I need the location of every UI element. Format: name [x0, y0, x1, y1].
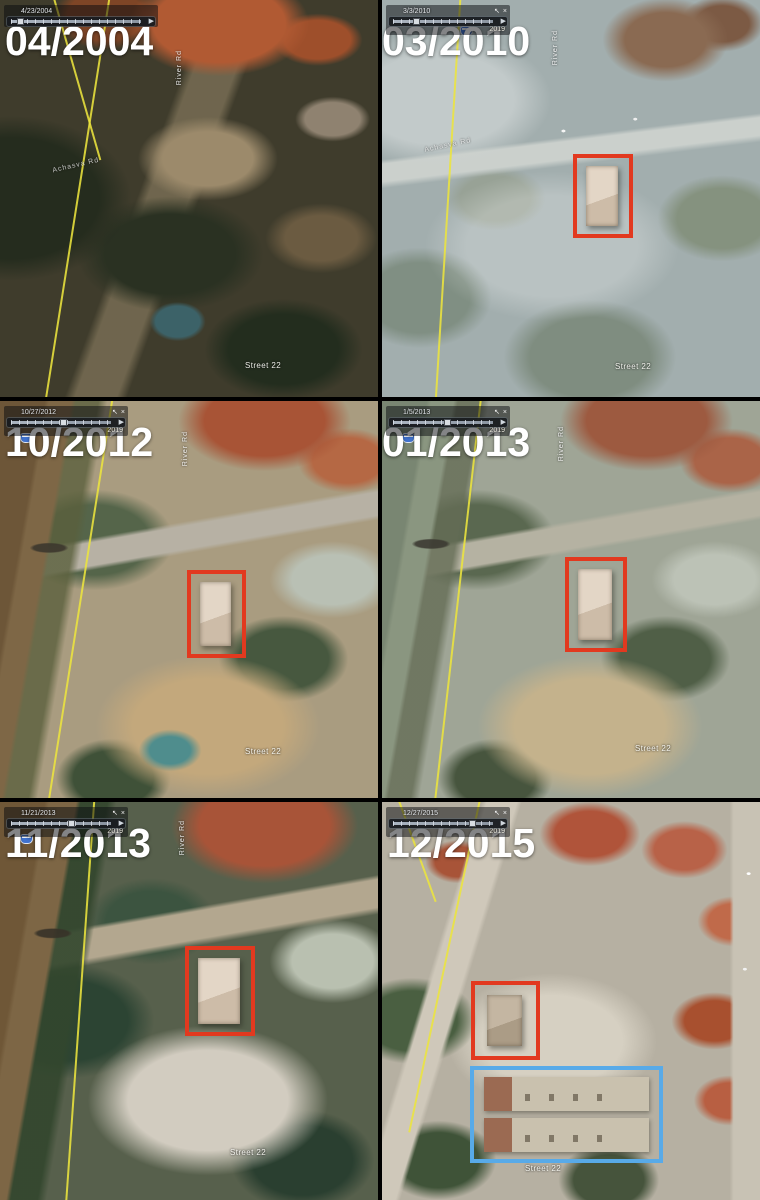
timeline-tools: ↖× [112, 408, 125, 417]
close-icon[interactable]: × [121, 408, 125, 417]
river-road-label: River Rd [552, 30, 559, 65]
highlighted-building [198, 958, 240, 1024]
timeline-current-date: 11/21/2013 [21, 810, 56, 817]
highlight-box-red [471, 981, 540, 1060]
highlighted-building [200, 582, 231, 646]
timeline-track[interactable]: ▶ [7, 819, 125, 828]
historical-imagery-slider[interactable]: 4/23/2004 ↖× ▶ [4, 5, 158, 27]
timeline-tools: ↖× [112, 809, 125, 818]
timeline-handle[interactable] [469, 820, 476, 827]
close-icon[interactable]: × [503, 408, 507, 417]
satellite-panel-2012-10: 10/27/2012 ↖× ▶ 2019 10/2012 River Rd St… [0, 401, 378, 798]
step-forward-icon[interactable]: ▶ [501, 17, 506, 26]
step-forward-icon[interactable]: ▶ [501, 819, 506, 828]
historical-imagery-slider[interactable]: 10/27/2012 ↖× ▶ 2019 [4, 406, 128, 436]
timeline-end-year: 2019 [389, 828, 507, 836]
historical-imagery-slider[interactable]: 3/3/2010 ↖× ▶ 2019 [386, 5, 510, 35]
timeline-header: 4/23/2004 ↖× [7, 7, 155, 16]
timeline-end-year: 2019 [7, 828, 125, 836]
pan-arrow-icon[interactable]: ↖ [494, 809, 500, 818]
historical-imagery-slider[interactable]: 12/27/2015 ↖× ▶ 2019 [386, 807, 510, 837]
street-22-label: Street 22 [615, 362, 651, 371]
timeline-track[interactable]: ▶ [389, 819, 507, 828]
highlighted-building [487, 995, 522, 1046]
highlight-box-blue [470, 1066, 663, 1163]
timeline-tools: ↖× [494, 408, 507, 417]
timeline-end-year: 2019 [389, 427, 507, 435]
historical-imagery-slider[interactable]: 11/21/2013 ↖× ▶ 2019 [4, 807, 128, 837]
timeline-track[interactable]: ▶ [7, 17, 155, 26]
highlighted-building [586, 166, 618, 226]
timeline-track[interactable]: ▶ [389, 418, 507, 427]
step-forward-icon[interactable]: ▶ [501, 418, 506, 427]
satellite-panel-2013-01: 1/5/2013 ↖× ▶ 2019 01/2013 River Rd Stre… [382, 401, 760, 798]
street-22-label: Street 22 [245, 747, 281, 756]
timeline-handle[interactable] [17, 18, 24, 25]
street-22-label: Street 22 [635, 744, 671, 753]
highlighted-building [578, 569, 612, 640]
timeline-header: 12/27/2015 ↖× [389, 809, 507, 818]
timeline-handle[interactable] [68, 820, 75, 827]
timeline-handle[interactable] [413, 18, 420, 25]
street-22-label: Street 22 [230, 1148, 266, 1157]
highlight-box-red [565, 557, 627, 652]
timeline-handle[interactable] [444, 419, 451, 426]
satellite-panel-2004-04: 4/23/2004 ↖× ▶ 04/2004 River Rd Achasva … [0, 0, 378, 397]
timeline-current-date: 4/23/2004 [21, 8, 52, 15]
river-road-label: River Rd [176, 50, 183, 85]
highlight-box-red [573, 154, 633, 238]
imagery-comparison-grid: 4/23/2004 ↖× ▶ 04/2004 River Rd Achasva … [0, 0, 760, 1200]
pan-arrow-icon[interactable]: ↖ [494, 408, 500, 417]
pan-arrow-icon[interactable]: ↖ [494, 7, 500, 16]
pan-arrow-icon[interactable]: ↖ [112, 809, 118, 818]
road-name-label: Achasva Rd [424, 137, 472, 154]
river-road-label: River Rd [558, 426, 565, 461]
timeline-header: 1/5/2013 ↖× [389, 408, 507, 417]
road-name-label: Achasva Rd [52, 157, 100, 175]
timeline-track[interactable]: ▶ [389, 17, 507, 26]
timeline-tools: ↖× [494, 7, 507, 16]
new-building-block [484, 1118, 649, 1152]
timeline-end-year: 2019 [389, 26, 507, 34]
timeline-header: 3/3/2010 ↖× [389, 7, 507, 16]
timeline-current-date: 10/27/2012 [21, 409, 56, 416]
timeline-current-date: 3/3/2010 [403, 8, 430, 15]
timeline-current-date: 1/5/2013 [403, 409, 430, 416]
close-icon[interactable]: × [503, 809, 507, 818]
timeline-header: 11/21/2013 ↖× [7, 809, 125, 818]
timeline-header: 10/27/2012 ↖× [7, 408, 125, 417]
satellite-panel-2013-11: 11/21/2013 ↖× ▶ 2019 11/2013 River Rd St… [0, 802, 378, 1200]
satellite-panel-2010-03: 3/3/2010 ↖× ▶ 2019 03/2010 River Rd Acha… [382, 0, 760, 397]
timeline-handle[interactable] [60, 419, 67, 426]
historical-imagery-slider[interactable]: 1/5/2013 ↖× ▶ 2019 [386, 406, 510, 436]
new-building-block [484, 1077, 649, 1111]
highlight-box-red [185, 946, 255, 1036]
close-icon[interactable]: × [121, 809, 125, 818]
timeline-current-date: 12/27/2015 [403, 810, 438, 817]
timeline-tools: ↖× [494, 809, 507, 818]
street-22-label: Street 22 [245, 361, 281, 370]
timeline-end-year: 2019 [7, 427, 125, 435]
river-road-label: River Rd [179, 820, 186, 855]
river-road-label: River Rd [182, 431, 189, 466]
step-forward-icon[interactable]: ▶ [119, 819, 124, 828]
step-forward-icon[interactable]: ▶ [149, 17, 154, 26]
step-forward-icon[interactable]: ▶ [119, 418, 124, 427]
street-22-label: Street 22 [525, 1164, 561, 1173]
pan-arrow-icon[interactable]: ↖ [112, 408, 118, 417]
close-icon[interactable]: × [503, 7, 507, 16]
satellite-panel-2015-12: 12/27/2015 ↖× ▶ 2019 12/2015 Street 22 [382, 802, 760, 1200]
timeline-track[interactable]: ▶ [7, 418, 125, 427]
highlight-box-red [187, 570, 246, 658]
